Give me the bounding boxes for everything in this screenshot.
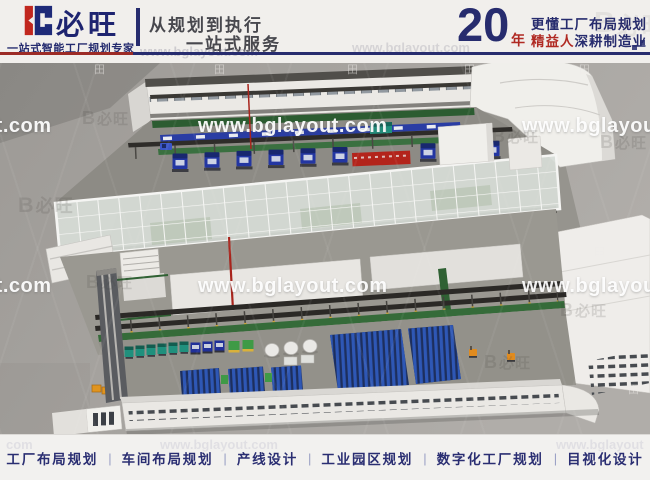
grid-icon: 田 <box>94 65 105 76</box>
watermark: www.bglayout.com <box>0 275 52 298</box>
grid-icon: 田 <box>594 247 605 258</box>
grid-icon: 田 <box>628 385 639 396</box>
brand-name: 必旺 <box>56 3 120 43</box>
menu-item-digital-factory: 数字化工厂规划 <box>427 448 554 468</box>
logo-watermark: B必旺 <box>492 126 539 147</box>
logo-pixel-square <box>640 40 645 45</box>
menu-item-factory-layout: 工厂布局规划 <box>0 448 108 468</box>
logo-watermark: B必旺 <box>18 192 74 218</box>
grid-icon: 田 <box>214 65 225 76</box>
logo-watermark: B必旺 <box>86 272 133 293</box>
footer-menu: 工厂布局规划 | 车间布局规划 | 产线设计 | 工业园区规划 | 数字化工厂规… <box>0 448 650 468</box>
watermark: www.bglayout.com <box>198 115 388 138</box>
logo-watermark: B 必旺 <box>594 6 650 41</box>
logo-watermark: B必旺 <box>560 300 607 321</box>
logo-watermark: B必旺 <box>600 132 647 153</box>
logo-watermark: B必旺 <box>82 108 129 129</box>
watermark: www.bglayout.com <box>0 115 52 138</box>
years-unit: 年 <box>511 30 525 50</box>
footer: com www.bglayout.com www.bglayout 工厂布局规划… <box>0 434 650 480</box>
grid-icon: 田 <box>464 65 475 76</box>
watermark: www.bglayout.com <box>198 275 388 298</box>
header-rule <box>0 52 650 55</box>
grid-icon: 田 <box>347 65 358 76</box>
menu-item-workshop-layout: 车间布局规划 <box>112 448 224 468</box>
menu-item-visual-design: 目视化设计 <box>557 448 650 468</box>
logo-pixel-square <box>632 45 637 50</box>
menu-item-line-design: 产线设计 <box>227 448 308 468</box>
menu-item-industrial-park: 工业园区规划 <box>311 448 423 468</box>
promo-highlight: 精益人 <box>531 34 575 49</box>
grid-icon: 田 <box>579 65 590 76</box>
header-divider <box>136 8 140 46</box>
logo-watermark: B必旺 <box>484 352 531 373</box>
promo-banner: 必旺 一站式智能工厂规划专家 从规划到执行 一站式服务 20 年 更懂工厂布局规… <box>0 0 650 480</box>
factory-3d-render: www.bglayout.com www.bglayout.com www.bg… <box>0 63 650 434</box>
header: 必旺 一站式智能工厂规划专家 从规划到执行 一站式服务 20 年 更懂工厂布局规… <box>0 0 650 63</box>
watermark: www.bglayout.com <box>522 275 650 298</box>
brand-logo-icon <box>21 5 54 36</box>
